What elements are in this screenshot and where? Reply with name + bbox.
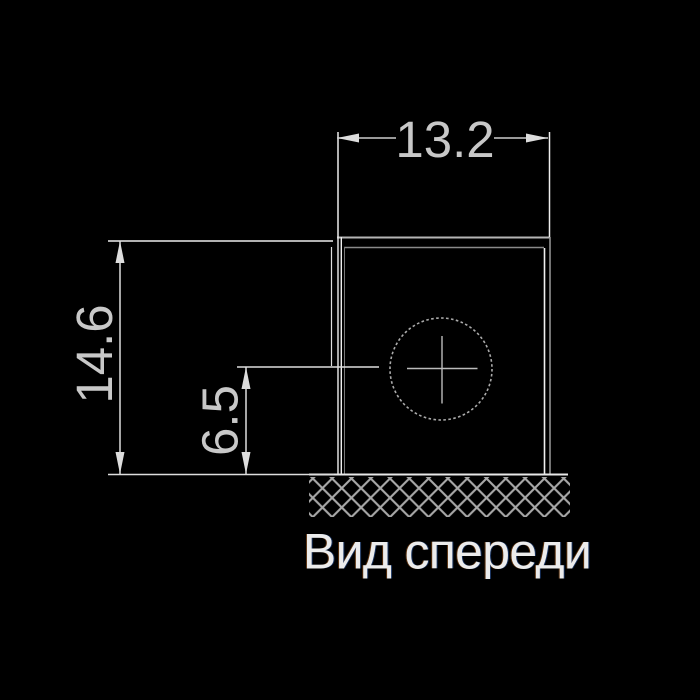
svg-text:13.2: 13.2 (395, 111, 494, 168)
svg-text:14.6: 14.6 (66, 304, 123, 403)
svg-text:Вид спереди: Вид спереди (303, 524, 591, 580)
svg-text:6.5: 6.5 (192, 385, 249, 456)
